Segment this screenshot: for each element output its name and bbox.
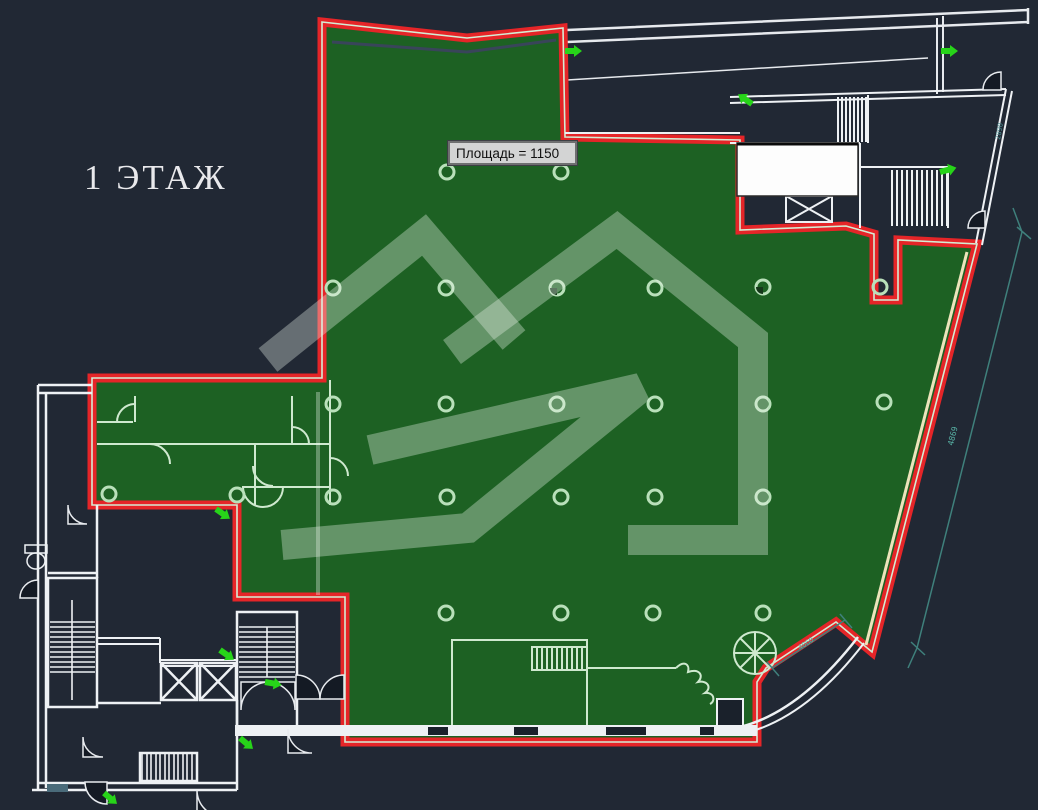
wall-gap — [606, 727, 646, 735]
door-arc — [968, 211, 985, 228]
door-arc — [85, 782, 107, 804]
dimension-label: 4869 — [946, 425, 959, 446]
wall-gap — [514, 727, 538, 735]
floor-plan-canvas: 4869 4060 2890 — [0, 0, 1038, 810]
floor-title: 1 ЭТАЖ — [84, 158, 228, 198]
stair-treads — [892, 170, 947, 226]
fixture — [27, 553, 45, 569]
cad-viewport: 4869 4060 2890 1 ЭТАЖ Площадь = 1150 — [0, 0, 1038, 810]
selected-area[interactable] — [92, 22, 977, 742]
white-label-rect — [737, 143, 858, 196]
direction-arrow-icon — [735, 89, 756, 109]
stair-treads — [838, 97, 866, 142]
direction-arrow-icon — [236, 733, 257, 753]
stair-treads — [142, 754, 192, 780]
doorway-inset — [717, 699, 743, 726]
door-arc — [320, 675, 344, 699]
area-tooltip: Площадь = 1150 — [448, 141, 577, 165]
door-arc — [20, 580, 38, 598]
fixture — [25, 545, 47, 553]
door-arc — [83, 737, 103, 757]
door-arc — [983, 72, 1001, 90]
direction-arrow-icon — [264, 676, 283, 691]
direction-arrow-icon — [217, 645, 238, 665]
spiral-stair-icon — [734, 632, 776, 674]
wall-gap — [428, 727, 448, 735]
door-arc — [68, 505, 87, 524]
site-boundary-lines — [567, 8, 1028, 94]
door-arc — [267, 682, 295, 710]
wall-gap — [700, 727, 714, 735]
threshold-mark — [47, 784, 68, 792]
door-arc — [296, 675, 320, 699]
door-arc — [197, 790, 224, 810]
door-arc — [241, 682, 269, 710]
selected-area-fill[interactable] — [92, 22, 977, 742]
